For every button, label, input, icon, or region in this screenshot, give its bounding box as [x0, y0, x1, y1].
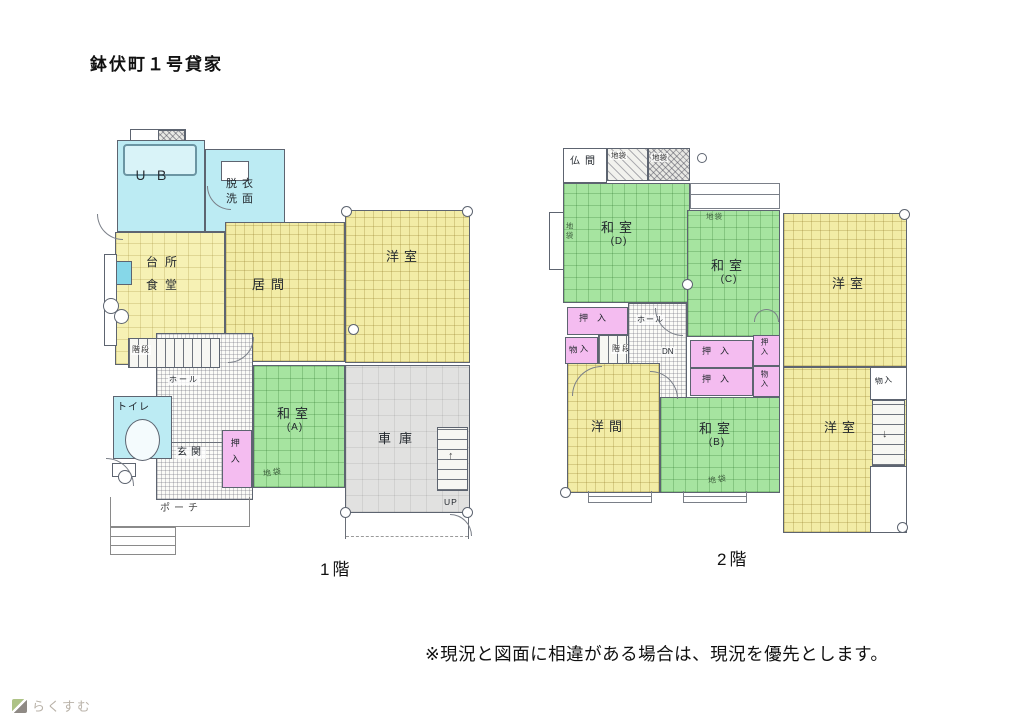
jibukuro-label-c: 地袋 — [706, 212, 723, 221]
window-strip — [588, 491, 652, 503]
window-strip — [683, 491, 747, 503]
pillar-mark — [340, 507, 351, 518]
pillar-mark — [560, 487, 571, 498]
room-label-washitsu-c: 和室 (C) — [711, 258, 747, 286]
porch-steps — [110, 527, 176, 555]
room-label-western-1f: 洋室 — [386, 249, 422, 265]
pillar-mark — [348, 324, 359, 335]
closet-label-center-2: 押入 — [702, 374, 738, 385]
room-label-kitchen: 台所 食堂 — [146, 251, 184, 297]
jibukuro-label-top2: 地袋 — [651, 153, 668, 162]
pillar-mark — [897, 522, 908, 533]
window-strip — [690, 183, 780, 209]
pillar-mark — [899, 209, 910, 220]
up-arrow-icon: ↑ — [448, 450, 454, 463]
room-label-garage: 車庫 — [378, 431, 420, 447]
closet-label-2f-west: 押入 — [579, 313, 615, 324]
stairs-label-1f: 階段 — [131, 345, 151, 355]
dn-label: DN — [661, 347, 675, 357]
room-label-hall-1f: ホール — [168, 375, 200, 385]
down-arrow-icon: ↓ — [882, 428, 888, 441]
stove-burner-icon — [114, 309, 129, 324]
room-label-western-se: 洋室 — [824, 420, 860, 436]
room-label-ub: ＵＢ — [134, 168, 176, 184]
disclaimer-note: ※現況と図面に相違がある場合は、現況を優先とします。 — [425, 644, 888, 665]
pillar-mark — [682, 279, 693, 290]
room-label-toilet: トイレ — [117, 402, 150, 414]
storage-label-2f-west: 物入 — [569, 343, 591, 355]
jibukuro-label-top1: 地袋 — [610, 151, 627, 160]
room-label-washitsu-a: 和室 (A) — [277, 406, 313, 434]
door-arc — [97, 214, 123, 240]
pillar-mark — [462, 507, 473, 518]
toilet-bowl-icon — [125, 419, 160, 461]
watermark-text: らくすむ — [32, 699, 92, 715]
jibukuro-label-d: 地袋 — [565, 222, 574, 241]
room-label-western-ne: 洋室 — [832, 276, 868, 292]
room-label-living: 居間 — [252, 277, 290, 293]
closet-label-1f: 押入 — [229, 438, 240, 470]
closet-label-center-1: 押入 — [702, 346, 738, 357]
floorplan-page: 鉢伏町１号貸家 ＵＢ 脱衣 洗面 台所 食堂 居間 洋室 — [0, 0, 1024, 724]
room-label-genkan: 玄関 — [176, 447, 206, 459]
room-label-washitsu-b: 和室 (B) — [699, 421, 735, 449]
garage-opening-line — [346, 536, 468, 537]
room-label-yoma: 洋間 — [591, 419, 627, 435]
floor1-caption: 1階 — [320, 560, 352, 580]
sink-icon — [116, 261, 132, 285]
closet-label-2f-east: 押入 — [760, 338, 769, 357]
room-label-butsuma: 仏間 — [570, 156, 600, 168]
pillar-mark — [341, 206, 352, 217]
bay-window — [549, 212, 564, 270]
room-label-washitsu-d: 和室 (D) — [601, 220, 637, 248]
floor2-caption: 2階 — [717, 550, 749, 570]
pillar-mark — [697, 153, 707, 163]
stairs-2f-down — [872, 400, 905, 466]
pillar-mark — [462, 206, 473, 217]
up-label: UP — [444, 497, 458, 507]
storage-label-2f-east: 物入 — [760, 370, 769, 389]
room-label-porch: ポーチ — [160, 503, 202, 515]
watermark-house-icon — [12, 699, 27, 713]
room-western-1f — [345, 210, 470, 363]
page-title: 鉢伏町１号貸家 — [90, 55, 223, 75]
